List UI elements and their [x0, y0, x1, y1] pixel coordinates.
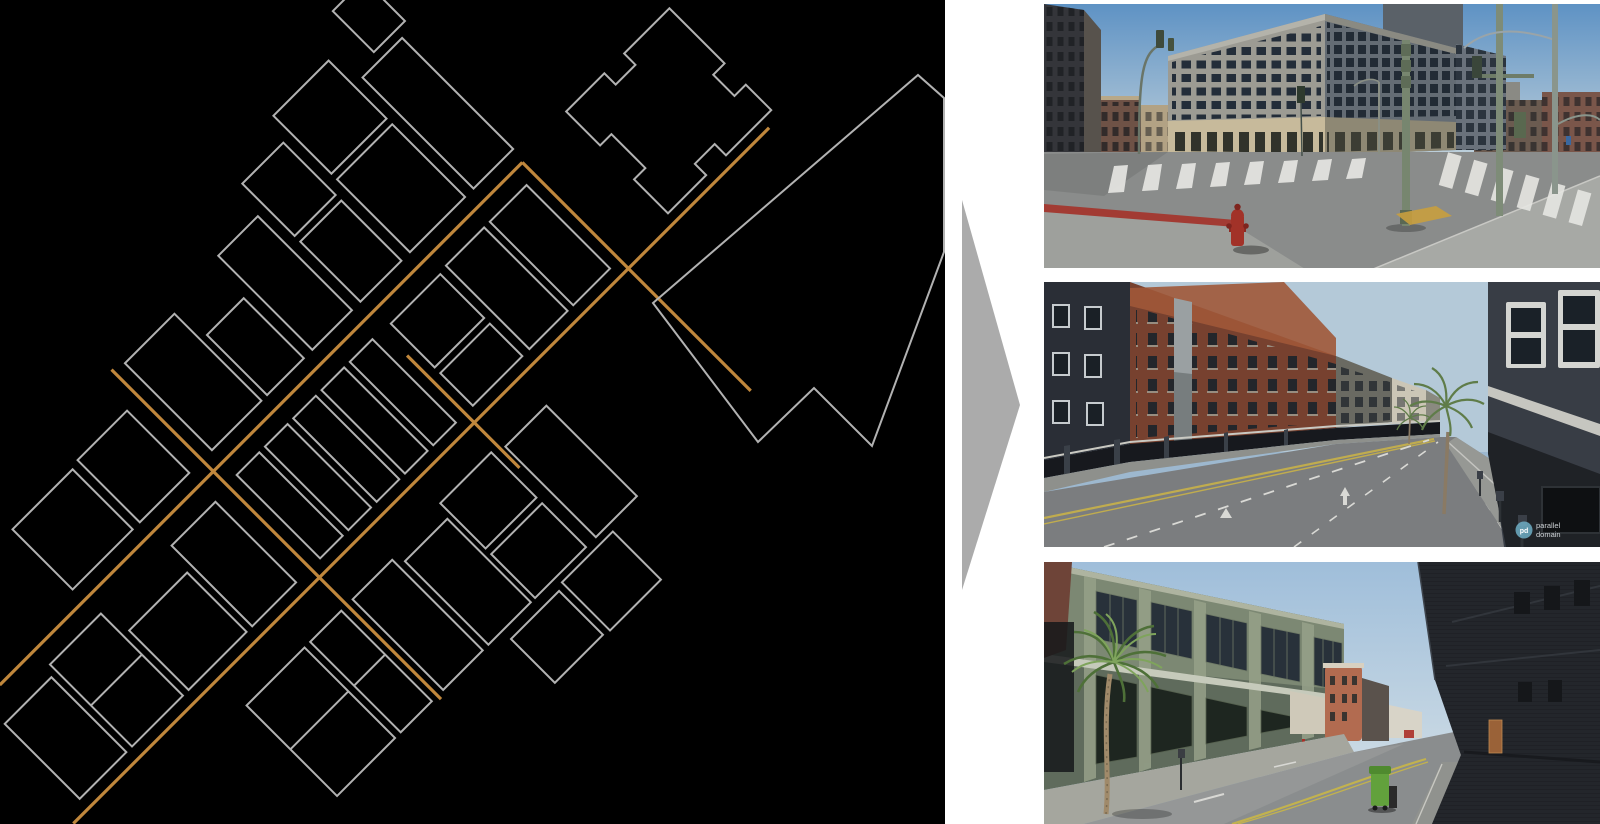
- city-map: [0, 0, 945, 824]
- render-column: pd parallel domain: [1044, 0, 1600, 824]
- pipeline-arrow-icon: [962, 198, 1026, 592]
- watermark-line2: domain: [1536, 530, 1561, 539]
- distant-truck: [1404, 730, 1414, 738]
- watermark-logo-text: pd: [1520, 528, 1529, 535]
- map-background: [0, 0, 945, 824]
- watermark: pd parallel domain: [1516, 521, 1561, 539]
- render-intersection: [1044, 4, 1600, 268]
- arrow-triangle: [962, 200, 1020, 590]
- watermark-line1: parallel: [1536, 521, 1561, 530]
- render-narrow-street: [1044, 562, 1600, 824]
- render-street: pd parallel domain: [1044, 282, 1600, 547]
- brick-sliver-left: [1044, 562, 1074, 772]
- orange-sign: [1489, 720, 1502, 753]
- city-map-panel: [0, 0, 945, 824]
- corner-building-left: [1044, 4, 1101, 156]
- figure-root: pd parallel domain: [0, 0, 1600, 824]
- corner-building-right: [1488, 282, 1600, 547]
